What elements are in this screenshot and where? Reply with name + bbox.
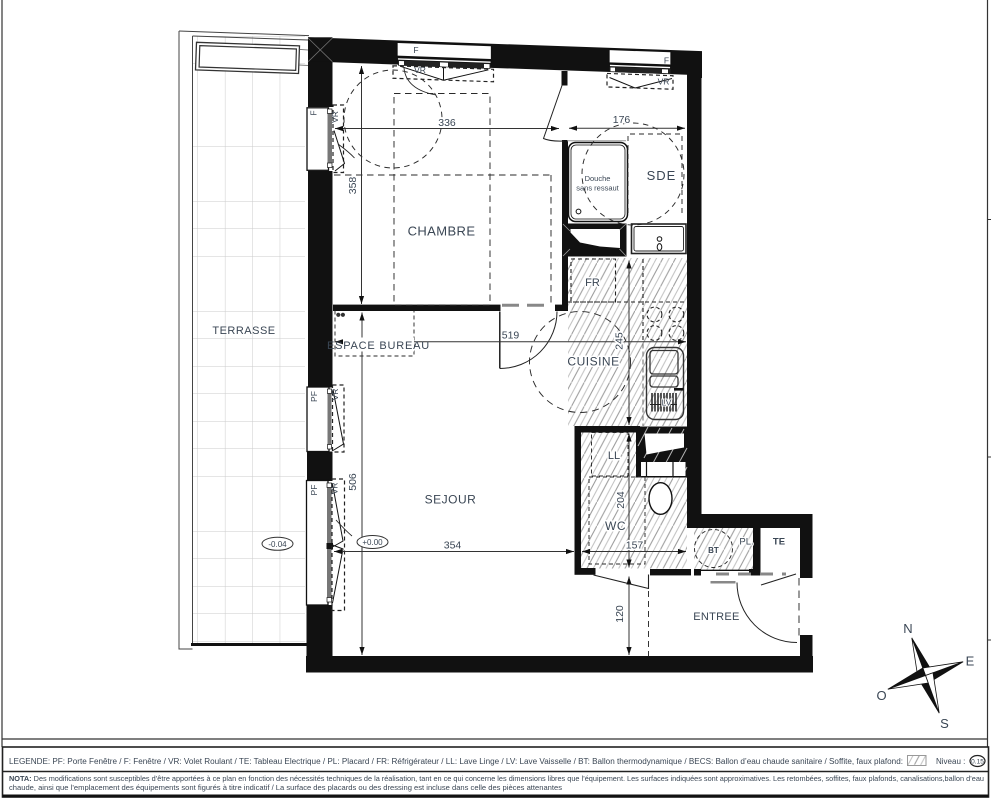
- svg-text:WC: WC: [605, 519, 626, 533]
- svg-text:LV: LV: [662, 398, 672, 408]
- svg-text:176: 176: [613, 114, 631, 126]
- svg-text:ESPACE BUREAU: ESPACE BUREAU: [327, 340, 430, 352]
- svg-text:TERRASSE: TERRASSE: [212, 325, 275, 337]
- svg-text:VR: VR: [414, 65, 426, 75]
- svg-text:336: 336: [438, 117, 456, 129]
- svg-text:120: 120: [614, 605, 626, 623]
- svg-text:PL.: PL.: [739, 537, 753, 548]
- svg-text:N: N: [903, 621, 912, 636]
- svg-text:LL: LL: [608, 450, 620, 462]
- svg-text:VR: VR: [658, 77, 670, 87]
- svg-text:0.15: 0.15: [971, 758, 984, 765]
- svg-text:PF: PF: [309, 485, 319, 496]
- svg-text:506: 506: [347, 473, 359, 491]
- svg-text:354: 354: [444, 540, 462, 552]
- svg-text:245: 245: [614, 332, 626, 350]
- svg-text:F: F: [664, 56, 669, 66]
- svg-text:E: E: [966, 654, 975, 669]
- svg-text:CUISINE: CUISINE: [567, 355, 619, 369]
- svg-text:-0.04: -0.04: [268, 540, 287, 549]
- svg-text:204: 204: [615, 491, 627, 509]
- svg-text:F: F: [413, 45, 418, 55]
- svg-text:SEJOUR: SEJOUR: [425, 493, 477, 507]
- svg-text:VR: VR: [330, 389, 340, 401]
- svg-text:S: S: [940, 716, 949, 731]
- svg-text:SDE: SDE: [647, 168, 677, 183]
- svg-text:NOTA: Des modifications sont: NOTA: Des modifications sont susceptible…: [9, 774, 984, 783]
- svg-text:Niveau :: Niveau :: [936, 757, 965, 766]
- svg-text:FR: FR: [585, 277, 600, 289]
- svg-text:BT: BT: [708, 546, 719, 555]
- svg-text:chaude, ainsi que l’emplacemen: chaude, ainsi que l’emplacement des équi…: [9, 783, 562, 792]
- svg-text:358: 358: [347, 177, 359, 195]
- svg-text:TE: TE: [773, 537, 785, 548]
- svg-text:F: F: [309, 110, 319, 115]
- svg-text:LEGENDE: PF: Porte Fenêtre / F: LEGENDE: PF: Porte Fenêtre / F: Fenêtre …: [9, 757, 903, 766]
- svg-text:ENTREE: ENTREE: [693, 611, 739, 623]
- svg-text:+0.00: +0.00: [362, 538, 383, 547]
- svg-text:PF: PF: [309, 391, 319, 402]
- svg-text:VR: VR: [330, 483, 340, 495]
- svg-text:VR: VR: [330, 111, 340, 123]
- svg-text:sans ressaut: sans ressaut: [576, 184, 619, 193]
- svg-text:CHAMBRE: CHAMBRE: [408, 224, 476, 239]
- svg-text:Douche: Douche: [585, 174, 611, 183]
- svg-text:O: O: [876, 688, 886, 703]
- svg-text:519: 519: [502, 330, 520, 342]
- svg-text:157: 157: [626, 540, 644, 552]
